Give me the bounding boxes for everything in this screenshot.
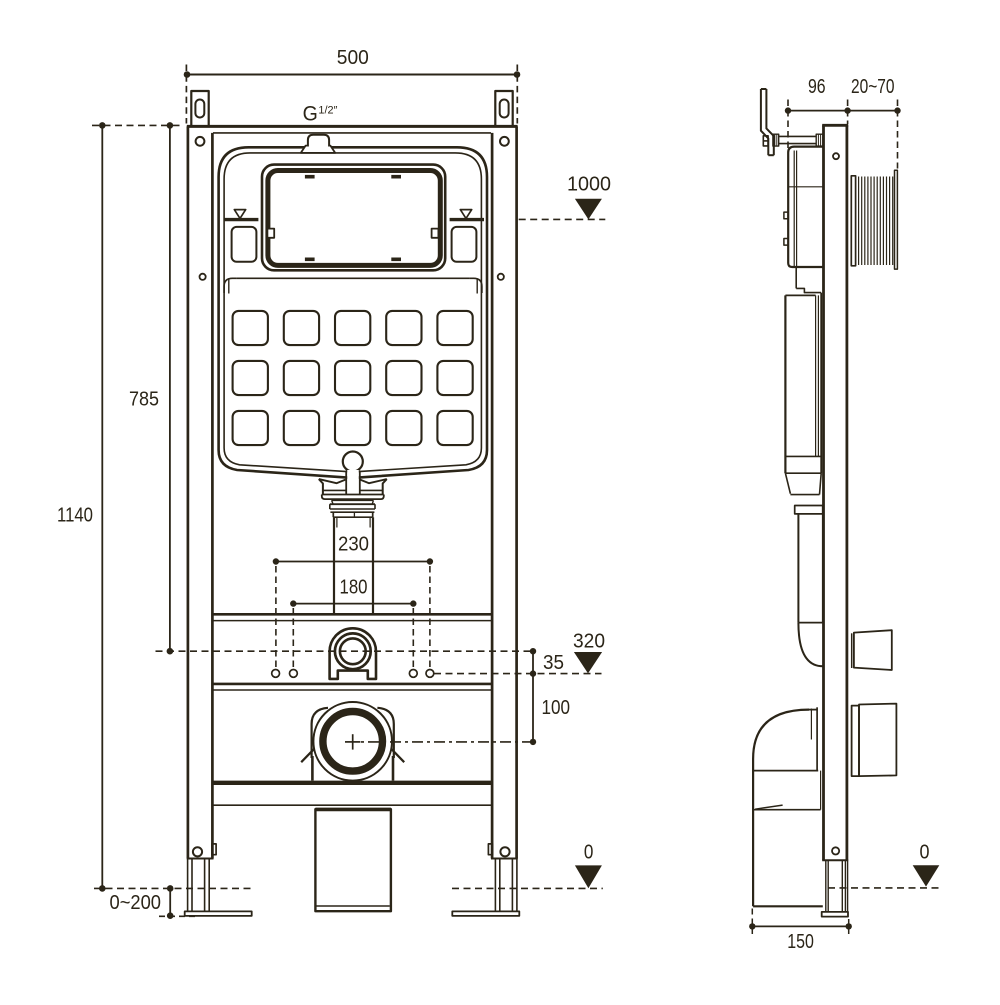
svg-text:1000: 1000 — [567, 174, 611, 196]
svg-text:0: 0 — [920, 842, 930, 864]
svg-text:500: 500 — [337, 47, 369, 69]
svg-text:150: 150 — [787, 931, 814, 953]
svg-text:1140: 1140 — [57, 505, 93, 527]
svg-text:G: G — [303, 103, 318, 126]
svg-text:180: 180 — [340, 577, 368, 599]
svg-text:785: 785 — [129, 389, 159, 411]
svg-text:20~70: 20~70 — [851, 76, 895, 98]
svg-text:35: 35 — [543, 652, 564, 674]
svg-text:100: 100 — [542, 697, 571, 719]
svg-text:1/2″: 1/2″ — [318, 104, 337, 116]
svg-text:0: 0 — [584, 842, 594, 864]
svg-text:230: 230 — [338, 534, 369, 556]
svg-text:320: 320 — [573, 631, 605, 653]
svg-text:0~200: 0~200 — [110, 892, 162, 914]
svg-text:96: 96 — [808, 76, 826, 98]
